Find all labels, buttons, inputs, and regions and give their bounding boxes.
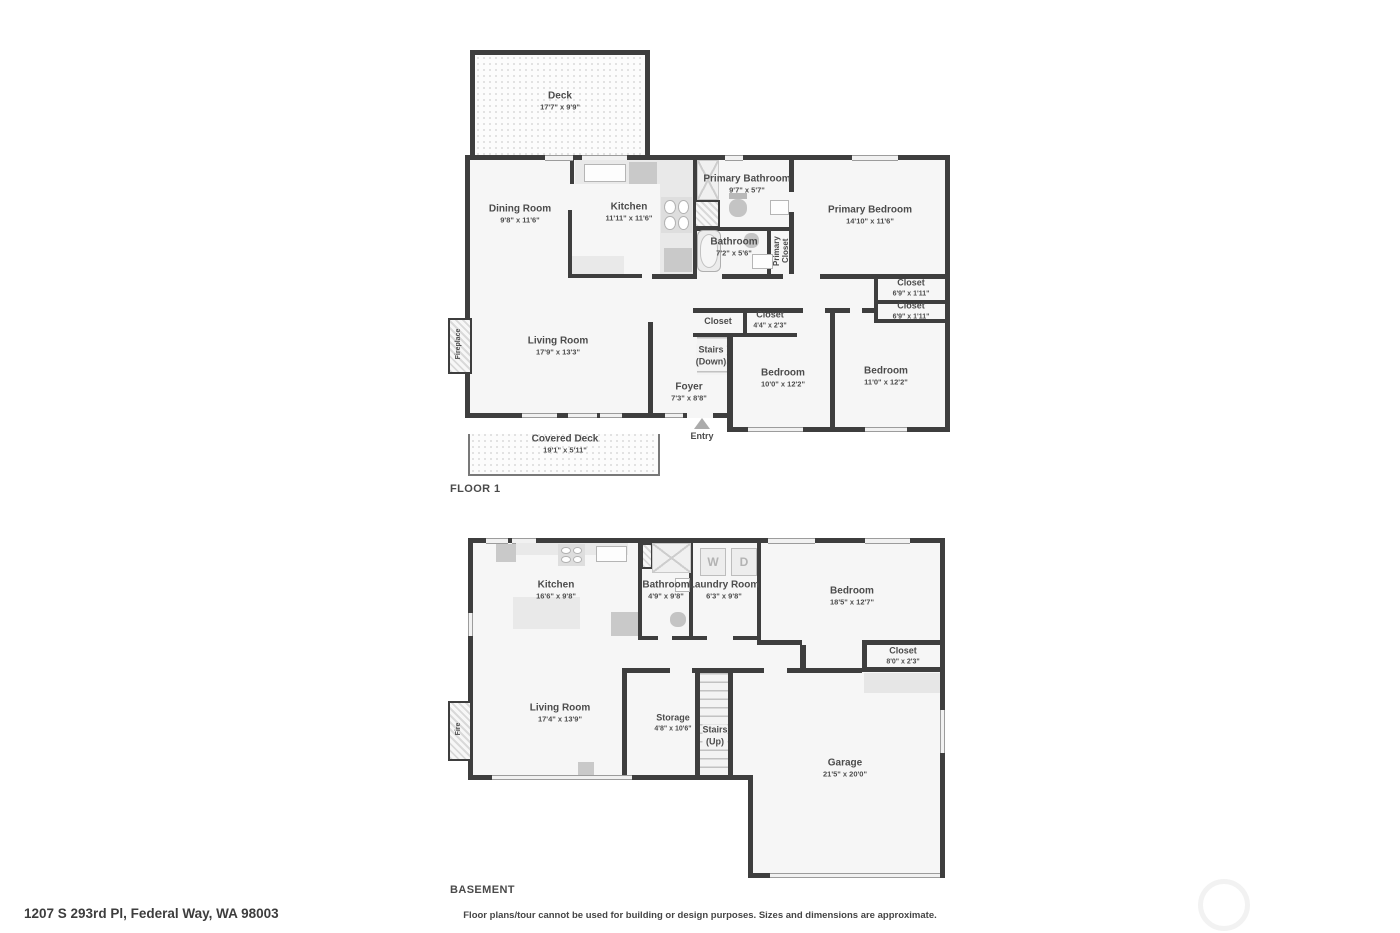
window — [865, 538, 910, 544]
room-label-closet-bsmt: Closet 8'0" x 2'3" — [886, 646, 919, 667]
wall — [787, 668, 862, 673]
room-label-deck: Deck 17'7" x 9'9" — [540, 90, 580, 113]
wall — [568, 274, 642, 278]
refrigerator-icon — [496, 544, 516, 562]
washer-box: W — [700, 548, 726, 576]
refrigerator-icon — [664, 248, 692, 272]
stove-icon — [558, 544, 585, 566]
room-label-closet-b: Closet 6'9" x 1'11" — [893, 301, 930, 322]
room-label-stairs-down: Stairs (Down) — [696, 344, 727, 367]
room-label-kitchen-bsmt: Kitchen 16'6" x 9'8" — [536, 579, 576, 602]
tv-cabinet — [578, 762, 594, 775]
wall — [693, 636, 707, 640]
garage-platform — [864, 673, 940, 693]
wall — [727, 333, 733, 432]
room-label-kitchen: Kitchen 11'11" x 11'6" — [606, 201, 653, 224]
wall — [757, 640, 802, 645]
room-label-bedroom-b: Bedroom 11'0" x 12'2" — [864, 365, 908, 388]
disclaimer-text: Floor plans/tour cannot be used for buil… — [450, 910, 950, 921]
window — [725, 155, 743, 161]
dishwasher-icon — [629, 162, 657, 184]
room-label-living-bsmt: Living Room 17'4" x 13'9" — [530, 702, 591, 725]
floor1-notch — [458, 418, 728, 434]
window — [568, 413, 597, 418]
wall — [747, 333, 797, 337]
stove-icon — [661, 197, 692, 233]
wall — [862, 308, 878, 313]
entry-label: Entry — [690, 431, 713, 443]
wall — [622, 668, 627, 775]
wall — [820, 274, 950, 279]
sink-icon — [770, 200, 789, 215]
window — [468, 613, 473, 636]
wall — [638, 636, 658, 640]
wall — [672, 636, 693, 640]
room-label-living: Living Room 17'9" x 13'3" — [528, 335, 589, 358]
room-label-closet-d: Closet 4'4" x 2'3" — [753, 310, 786, 331]
room-label-bedroom-a: Bedroom 10'0" x 12'2" — [761, 367, 805, 390]
toilet-icon — [729, 199, 747, 217]
chimney — [694, 200, 720, 228]
room-label-bathroom-bsmt: Bathroom 4'9" x 9'8" — [642, 579, 689, 602]
room-label-storage: Storage 4'8" x 10'6" — [654, 713, 691, 734]
room-label-foyer: Foyer 7'3" x 8'8" — [671, 381, 707, 404]
room-label-primary-bathroom: Primary Bathroom 9'7" x 5'7" — [703, 173, 790, 196]
shower-icon — [652, 543, 691, 573]
washer-letter: W — [707, 555, 718, 569]
room-label-primary-bedroom: Primary Bedroom 14'10" x 11'6" — [828, 204, 912, 227]
wall — [830, 313, 835, 432]
window — [865, 427, 907, 432]
dryer-box: D — [731, 548, 757, 576]
watermark-logo — [1198, 879, 1250, 931]
window — [522, 413, 557, 418]
toilet-icon — [670, 612, 686, 627]
window — [852, 155, 898, 161]
floorplan-page: Fireplace Deck 17'7" x 9'9" Dining Room … — [0, 0, 1400, 933]
wall — [862, 667, 945, 672]
room-label-stairs-up: Stairs (Up) — [702, 724, 727, 747]
kitchen-sink-icon — [584, 164, 626, 182]
room-label-closet-a: Closet 6'9" x 1'11" — [893, 278, 930, 299]
garage-door — [770, 873, 940, 878]
wall — [825, 308, 850, 313]
floor1-title: FLOOR 1 — [450, 483, 500, 495]
kitchen-sink-icon — [596, 546, 627, 562]
garage-floor — [753, 775, 940, 873]
window — [492, 775, 632, 780]
room-label-covered-deck: Covered Deck 19'1" x 5'11" — [532, 433, 599, 456]
room-label-dining: Dining Room 9'8" x 11'6" — [489, 203, 551, 226]
room-label-primary-closet: Primary Closet — [772, 223, 790, 279]
window — [545, 155, 573, 161]
window — [748, 427, 803, 432]
room-label-garage: Garage 21'5" x 20'0" — [823, 757, 867, 780]
wall — [862, 640, 945, 645]
kitchen-counter — [572, 256, 624, 274]
wall — [648, 322, 653, 413]
wall — [652, 274, 697, 279]
wall — [733, 668, 764, 673]
window — [768, 538, 815, 544]
room-label-closet-c: Closet — [704, 316, 732, 328]
wall — [800, 645, 806, 670]
wall — [622, 668, 670, 673]
wall — [570, 160, 574, 184]
property-address: 1207 S 293rd Pl, Federal Way, WA 98003 — [24, 906, 279, 921]
fireplace-label: Fireplace — [455, 329, 463, 360]
wall — [797, 308, 803, 313]
basement-title: BASEMENT — [450, 884, 515, 896]
fireplace-label: Fire — [455, 723, 463, 736]
dryer-letter: D — [740, 555, 749, 569]
garage-side-door — [940, 710, 945, 753]
room-label-bathroom: Bathroom 7'2" x 5'6" — [710, 236, 757, 259]
dishwasher-icon — [611, 612, 638, 636]
room-label-bedroom-bsmt: Bedroom 18'5" x 12'7" — [830, 585, 874, 608]
room-label-laundry: Laundry Room 6'3" x 9'8" — [689, 579, 760, 602]
kitchen-island — [513, 597, 580, 629]
wall — [728, 668, 733, 775]
window — [600, 413, 622, 418]
window — [665, 413, 683, 418]
entry-arrow-icon — [694, 418, 710, 429]
